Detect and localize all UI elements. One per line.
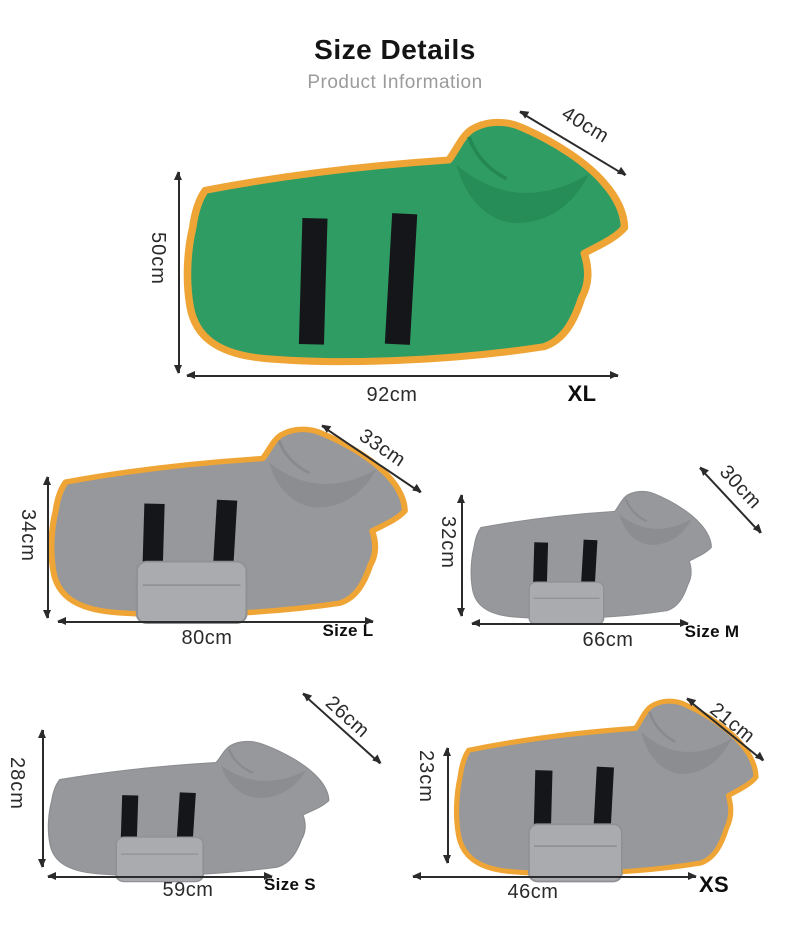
xl-length-measurement: 92cm	[352, 384, 432, 407]
xl-height-dimension-arrow	[178, 172, 180, 373]
s-height-dimension-arrow	[42, 730, 44, 867]
m-robe-image	[445, 489, 721, 638]
xl-size-label: XL	[550, 381, 614, 407]
xl-length-dimension-arrow	[187, 375, 618, 377]
s-robe-image	[18, 739, 340, 896]
l-height-dimension-arrow	[47, 477, 49, 618]
xl-height-measurement: 50cm	[146, 232, 169, 285]
l-robe-image	[13, 426, 419, 643]
s-height-measurement: 28cm	[5, 757, 28, 810]
xs-size-label: XS	[681, 872, 747, 898]
l-size-label: Size L	[306, 621, 390, 641]
m-length-dimension-arrow	[472, 623, 688, 625]
xs-length-measurement: 46cm	[493, 881, 573, 904]
m-height-dimension-arrow	[461, 495, 463, 616]
m-size-label: Size M	[670, 622, 754, 642]
l-length-measurement: 80cm	[167, 627, 247, 650]
s-length-dimension-arrow	[48, 876, 272, 878]
xs-robe-image	[424, 698, 768, 900]
m-height-measurement: 32cm	[436, 516, 459, 569]
page-title: Size Details	[0, 34, 790, 66]
xs-height-dimension-arrow	[447, 748, 449, 863]
page-subtitle: Product Information	[0, 72, 790, 94]
xl-robe-image	[140, 118, 642, 398]
xs-height-measurement: 23cm	[414, 750, 437, 803]
s-size-label: Size S	[248, 875, 332, 895]
xs-length-dimension-arrow	[413, 876, 696, 878]
s-length-measurement: 59cm	[148, 879, 228, 902]
size-details-infographic: Size Details Product Information 40cm 50…	[0, 0, 790, 950]
l-height-measurement: 34cm	[16, 509, 39, 562]
m-length-measurement: 66cm	[568, 629, 648, 652]
